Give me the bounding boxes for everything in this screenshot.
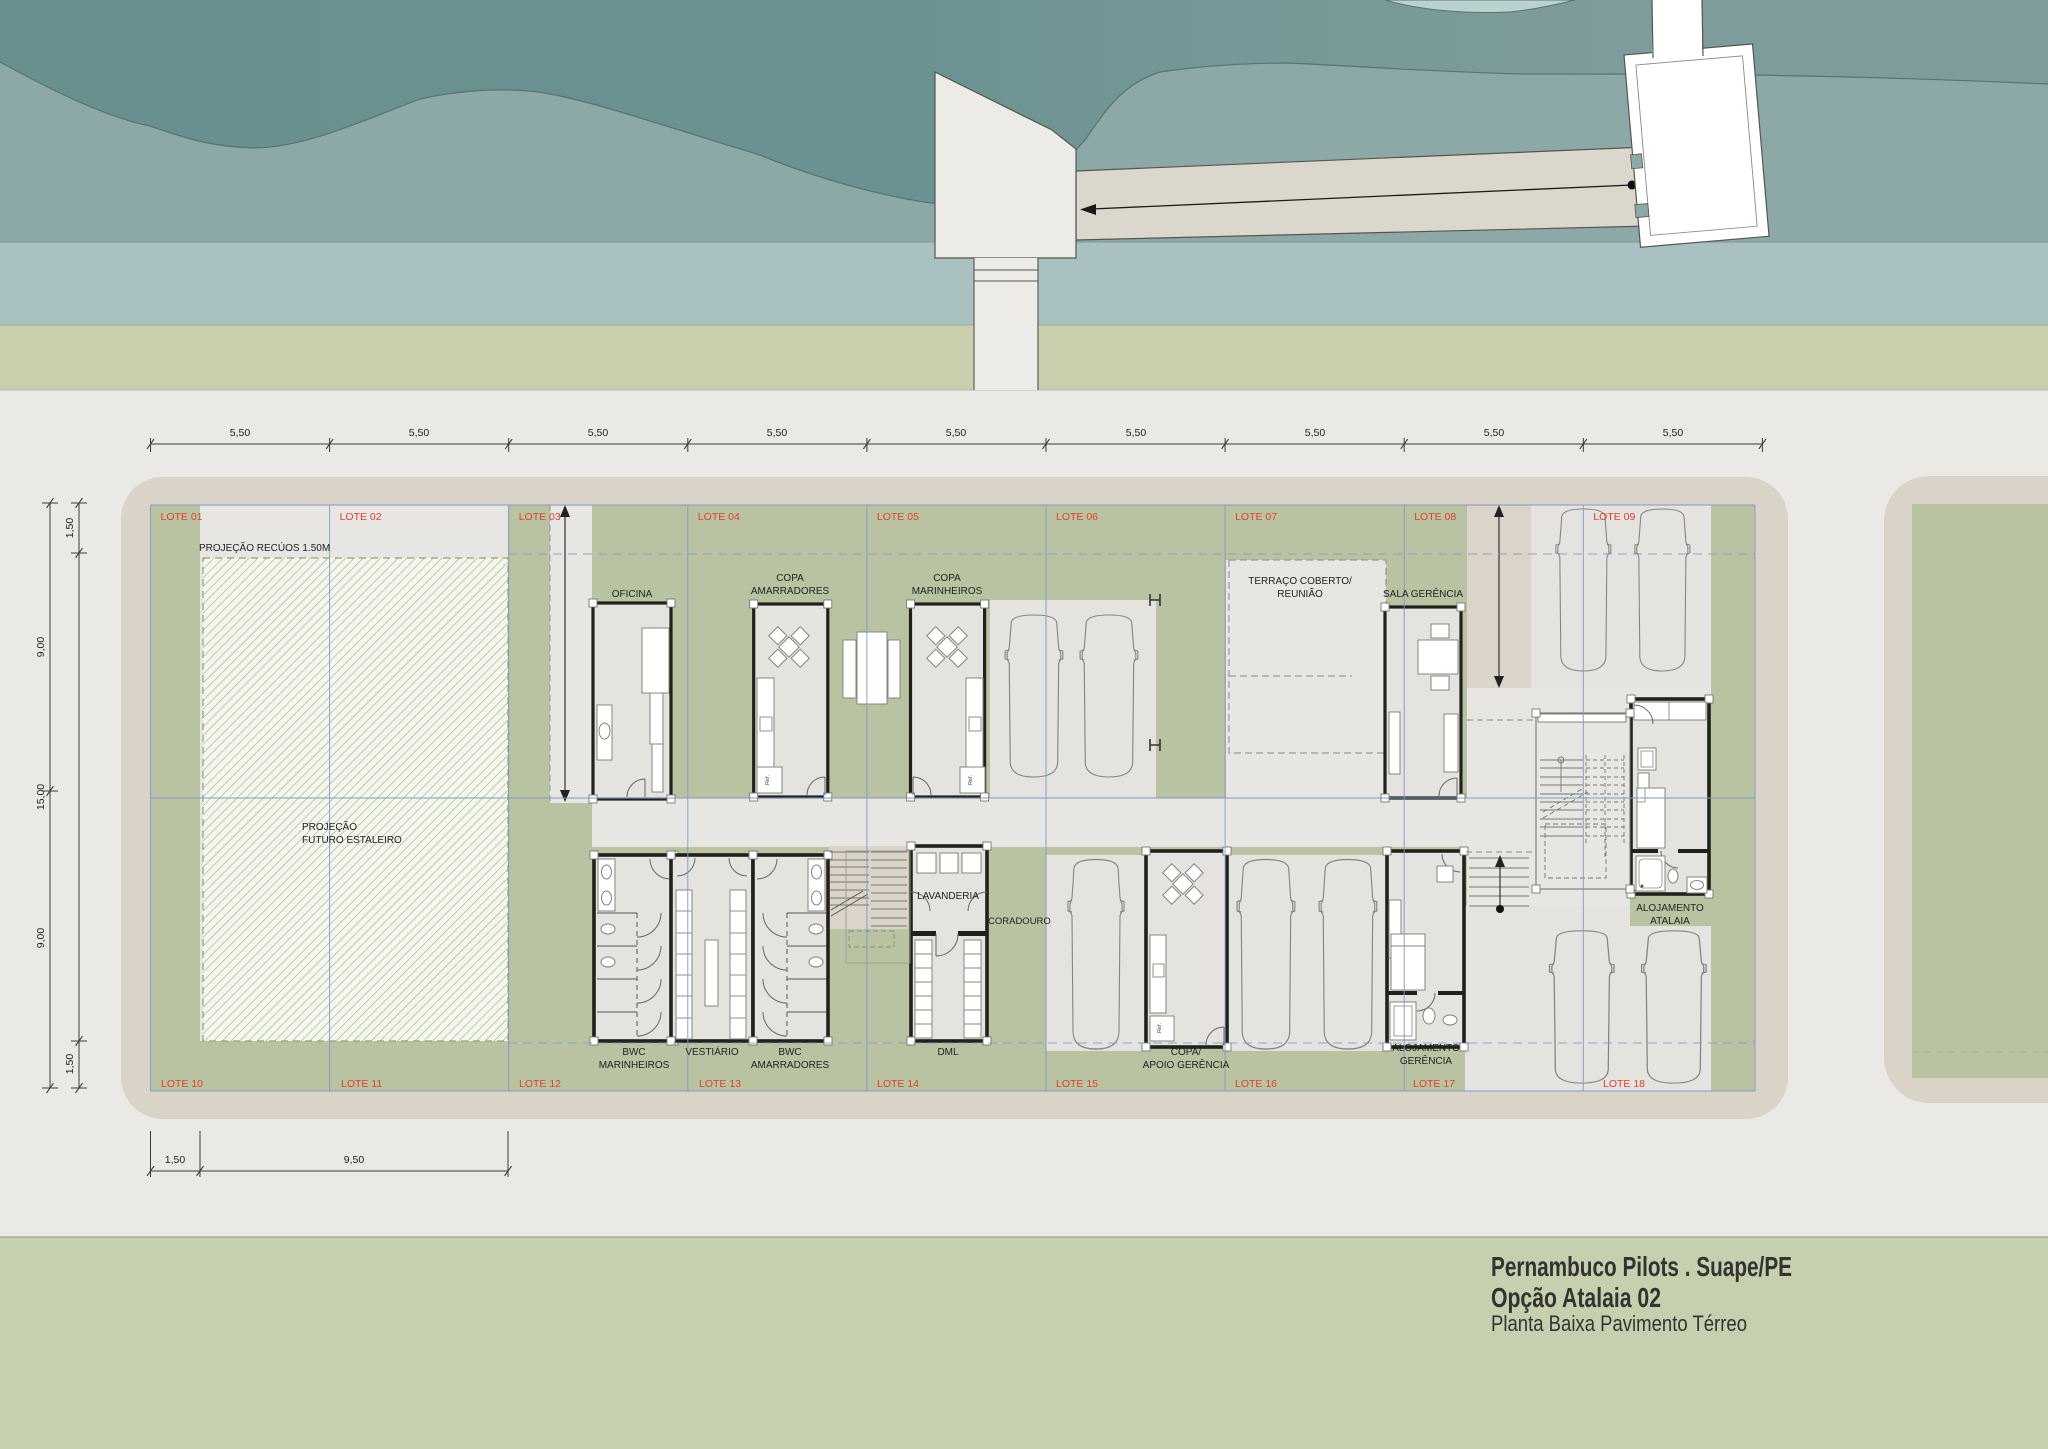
svg-text:BWC: BWC: [778, 1047, 801, 1058]
svg-text:Ref.: Ref.: [1157, 1022, 1163, 1033]
svg-text:1,50: 1,50: [165, 1154, 186, 1166]
svg-text:LOTE 04: LOTE 04: [698, 511, 740, 523]
svg-text:LOTE 06: LOTE 06: [1056, 511, 1098, 523]
svg-text:GERÊNCIA: GERÊNCIA: [1400, 1054, 1453, 1067]
svg-text:5,50: 5,50: [409, 427, 430, 439]
svg-text:LOTE 17: LOTE 17: [1413, 1078, 1455, 1090]
svg-text:Ref.: Ref.: [765, 774, 771, 785]
svg-text:9,50: 9,50: [344, 1154, 365, 1166]
svg-text:LOTE 11: LOTE 11: [341, 1078, 382, 1090]
svg-text:REUNIÃO: REUNIÃO: [1277, 587, 1323, 600]
svg-text:5,50: 5,50: [767, 427, 788, 439]
svg-text:LAVANDERIA: LAVANDERIA: [917, 891, 979, 902]
svg-text:LOTE 16: LOTE 16: [1235, 1078, 1277, 1090]
svg-text:LOTE 01: LOTE 01: [161, 511, 203, 523]
svg-text:COPA/: COPA/: [1171, 1047, 1202, 1058]
svg-text:MARINHEIROS: MARINHEIROS: [599, 1060, 670, 1071]
svg-text:SALA GERÊNCIA: SALA GERÊNCIA: [1383, 587, 1463, 600]
svg-text:Ref.: Ref.: [968, 774, 974, 785]
svg-text:PROJEÇÃO RECÚOS 1.50M: PROJEÇÃO RECÚOS 1.50M: [199, 541, 330, 554]
svg-text:1,50: 1,50: [64, 518, 76, 539]
svg-text:AMARRADORES: AMARRADORES: [751, 586, 830, 597]
svg-text:LOTE 07: LOTE 07: [1235, 511, 1277, 523]
svg-text:COPA: COPA: [776, 573, 804, 584]
svg-text:LOTE 18: LOTE 18: [1603, 1078, 1645, 1090]
svg-text:VESTIÁRIO: VESTIÁRIO: [685, 1045, 739, 1058]
svg-text:APOIO GERÊNCIA: APOIO GERÊNCIA: [1143, 1058, 1230, 1071]
svg-text:5,50: 5,50: [1126, 427, 1147, 439]
svg-text:LOTE 15: LOTE 15: [1056, 1078, 1098, 1090]
svg-text:15,00: 15,00: [35, 784, 47, 810]
svg-text:LOTE 09: LOTE 09: [1593, 511, 1635, 523]
svg-text:LOTE 05: LOTE 05: [877, 511, 919, 523]
svg-text:LOTE 08: LOTE 08: [1414, 511, 1456, 523]
svg-text:LOTE 12: LOTE 12: [519, 1078, 561, 1090]
svg-text:ALOJAMENTO: ALOJAMENTO: [1636, 903, 1704, 914]
svg-text:LOTE 13: LOTE 13: [699, 1078, 741, 1090]
svg-text:LOTE 03: LOTE 03: [519, 511, 561, 523]
svg-text:LOTE 14: LOTE 14: [877, 1078, 919, 1090]
svg-text:MARINHEIROS: MARINHEIROS: [912, 586, 983, 597]
svg-text:1,50: 1,50: [64, 1054, 76, 1075]
svg-text:LOTE 02: LOTE 02: [340, 511, 382, 523]
svg-text:5,50: 5,50: [588, 427, 609, 439]
svg-text:AMARRADORES: AMARRADORES: [751, 1060, 830, 1071]
svg-text:LOTE 10: LOTE 10: [161, 1078, 203, 1090]
svg-text:PROJEÇÃO: PROJEÇÃO: [302, 820, 357, 833]
svg-text:5,50: 5,50: [230, 427, 251, 439]
svg-text:5,50: 5,50: [1484, 427, 1505, 439]
svg-text:5,50: 5,50: [1663, 427, 1684, 439]
svg-text:5,50: 5,50: [1305, 427, 1326, 439]
svg-text:Opção Atalaia 02: Opção Atalaia 02: [1491, 1282, 1661, 1313]
svg-text:CORADOURO: CORADOURO: [988, 916, 1051, 927]
svg-text:9,00: 9,00: [35, 637, 47, 658]
svg-text:COPA: COPA: [933, 573, 961, 584]
svg-text:TERRAÇO COBERTO/: TERRAÇO COBERTO/: [1248, 576, 1352, 587]
svg-text:DML: DML: [937, 1047, 959, 1058]
svg-text:Pernambuco Pilots . Suape/PE: Pernambuco Pilots . Suape/PE: [1491, 1251, 1792, 1282]
svg-text:Planta Baixa Pavimento Térreo: Planta Baixa Pavimento Térreo: [1491, 1311, 1747, 1336]
svg-text:5,50: 5,50: [946, 427, 967, 439]
svg-text:BWC: BWC: [622, 1047, 645, 1058]
svg-text:ATALAIA: ATALAIA: [1650, 916, 1690, 927]
svg-text:OFICINA: OFICINA: [612, 589, 653, 600]
svg-text:FUTURO ESTALEIRO: FUTURO ESTALEIRO: [302, 835, 402, 846]
svg-text:ALOJAMENTO: ALOJAMENTO: [1392, 1043, 1460, 1054]
svg-text:9,00: 9,00: [35, 928, 47, 949]
